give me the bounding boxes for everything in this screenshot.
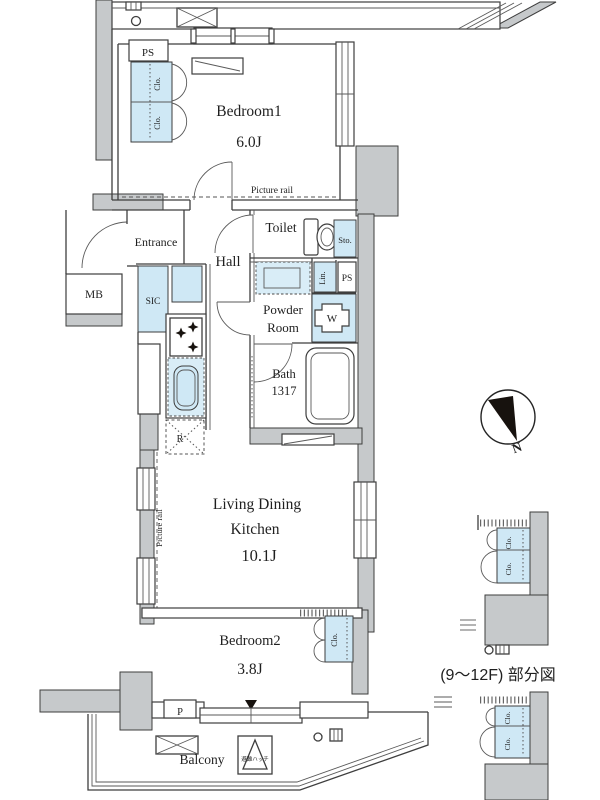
bath-size: 1317 [272,384,297,398]
bedroom1-north-window [191,28,274,44]
meter-box-label: MB [85,289,103,301]
picture-rail-label: Picture rail [251,186,293,196]
partial-plan-caption: (9〜12F) 部分図 [440,666,556,684]
bedroom2-room [152,616,428,723]
bathtub [306,348,354,424]
toilet-tank [304,219,318,255]
floor-plan-drawing: PS Clo. Clo. Bedroom1 6.0J Picture rail … [0,0,600,800]
partial-closet [497,528,530,583]
vent-grid-icon [330,729,342,741]
bedroom1-east-window [336,42,354,146]
shaft-box [138,344,160,414]
partial-closet [495,706,530,758]
washer-label: W [327,313,338,325]
bath-room [252,343,358,424]
storage-label: Sto. [338,235,351,245]
picture-rail-label: Picture rail [154,509,164,547]
fridge-label: R [177,434,184,445]
closet-label: Clo. [330,633,339,647]
toilet-door-arc [215,215,253,253]
powder-room-label-1: Powder [263,302,303,317]
powder-door-arc [217,302,250,335]
closet-label: Clo. [504,563,513,576]
ps-label-2: PS [342,274,353,284]
evacuation-hatch-label: 避難ハッチ [241,755,269,763]
pipe-label: P [177,707,183,718]
kitchen-sink [174,366,198,410]
bedroom1-label: Bedroom1 [216,103,281,120]
linen-label: Lin. [318,271,327,284]
closet-label: Clo. [153,77,162,91]
bedroom2-size: 3.8J [237,661,262,678]
hall-label: Hall [216,254,241,270]
bedroom2-label: Bedroom2 [219,633,280,649]
hall-walls [206,210,254,430]
ldk-label-1: Living Dining [213,496,302,513]
bedroom1-door-arc [194,162,232,200]
kitchen [166,314,206,454]
ps-label: PS [142,47,154,59]
refrigerator-space [166,420,204,454]
bedroom1-size: 6.0J [236,134,261,151]
north-corridor [112,2,522,29]
powder-room-label-2: Room [267,320,299,335]
compass-north-label: N [510,439,525,457]
ldk-east-window [354,482,376,558]
closet-label: Clo. [503,738,512,751]
ldk-size: 10.1J [241,546,277,565]
drain-circle-icon [314,733,322,741]
evacuation-hatch [238,736,272,774]
entrance-door-arc [82,222,127,268]
drain-circle-icon [485,646,493,654]
sic-label: SIC [146,297,161,307]
entrance-label: Entrance [135,235,178,249]
closet-label: Clo. [153,116,162,130]
ldk-label-2: Kitchen [230,521,279,538]
bath-label: Bath [272,367,296,381]
balcony-window [200,708,302,723]
closet-label: Clo. [503,712,512,725]
closet-label: Clo. [504,537,513,550]
compass [481,390,535,444]
floor-plan-page: PS Clo. Clo. Bedroom1 6.0J Picture rail … [0,0,600,800]
toilet-label: Toilet [265,220,297,235]
sic-counter [172,266,202,302]
partial-plan-bottom [434,697,530,758]
vent-grid-icon [496,645,509,654]
balcony-label: Balcony [180,752,225,767]
